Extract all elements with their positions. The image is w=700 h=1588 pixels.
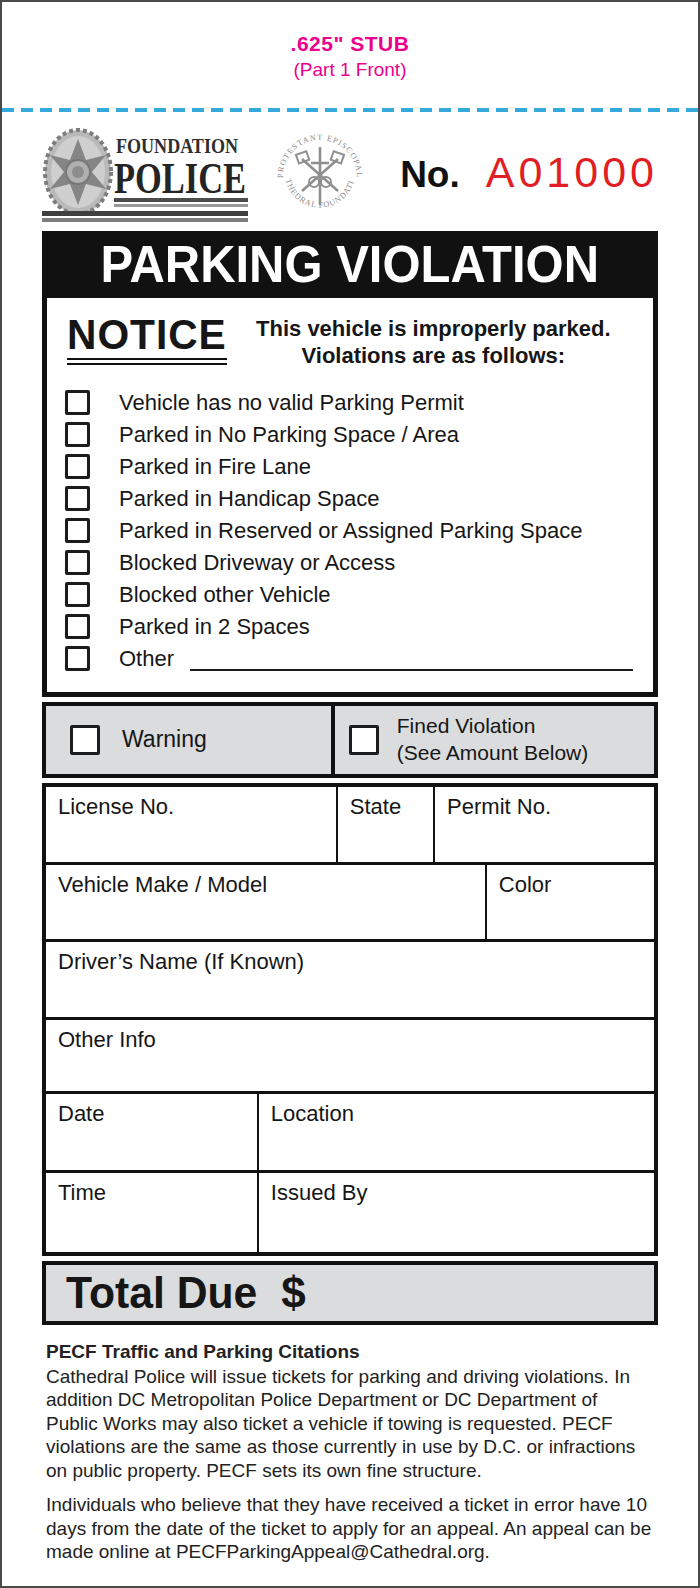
disposition-row: Warning Fined Violation (See Amount Belo… [42,702,658,778]
violation-label: Vehicle has no valid Parking Permit [119,390,464,416]
banner-title: PARKING VIOLATION [101,235,600,294]
perforation-dashed-line [2,108,698,112]
violation-label: Parked in Fire Lane [119,454,311,480]
violation-option-row: Parked in Fire Lane [65,454,633,480]
violation-notice-box: PARKING VIOLATION NOTICE This vehicle is… [42,231,658,697]
violation-label: Parked in 2 Spaces [119,614,310,640]
violation-checklist: Vehicle has no valid Parking Permit Park… [47,374,653,692]
notice-title: NOTICE [67,314,227,365]
fined-violation-label: Fined Violation (See Amount Below) [397,713,588,766]
violation-label: Blocked Driveway or Access [119,550,395,576]
footer-paragraph-2: Individuals who believe that they have r… [46,1493,654,1564]
other-write-in-line[interactable] [190,647,633,671]
total-due-bar: Total Due $ [42,1261,658,1325]
time-field[interactable]: Time [46,1173,259,1252]
violation-label: Other [119,646,174,672]
violation-checkbox[interactable] [65,390,90,415]
permit-no-field[interactable]: Permit No. [435,787,654,862]
violation-option-row: Vehicle has no valid Parking Permit [65,390,633,416]
violation-checkbox[interactable] [65,518,90,543]
notice-intro: This vehicle is improperly parked. Viola… [232,314,635,370]
police-badge-icon [45,130,111,214]
violation-option-row: Parked in Reserved or Assigned Parking S… [65,518,633,544]
violation-checkbox[interactable] [65,454,90,479]
violation-checkbox[interactable] [65,486,90,511]
notice-intro-line2: Violations are as follows: [232,343,635,370]
total-due-label: Total Due [66,1268,257,1318]
warning-cell: Warning [46,706,335,774]
date-field[interactable]: Date [46,1094,259,1170]
fined-violation-cell: Fined Violation (See Amount Below) [335,706,654,774]
parking-ticket-page: .625" STUB (Part 1 Front) FOUNDATION POL… [0,0,700,1588]
parking-violation-banner: PARKING VIOLATION [47,236,653,298]
violation-label: Parked in Handicap Space [119,486,380,512]
violation-option-row: Blocked other Vehicle [65,582,633,608]
notice-heading-row: NOTICE This vehicle is improperly parked… [47,298,653,374]
issued-by-field[interactable]: Issued By [259,1173,654,1252]
foundation-police-logo-icon: FOUNDATION POLICE [42,127,248,223]
stub-size-label: .625" STUB [2,32,698,56]
warning-checkbox[interactable] [70,725,100,755]
table-row: Other Info [46,1020,654,1094]
cathedral-foundation-seal-icon: PROTESTANT EPISCOPAL CATHEDRAL FOUNDATIO… [270,125,370,225]
violation-checkbox[interactable] [65,550,90,575]
ticket-number: No. A01000 [400,148,658,203]
violation-option-row: Parked in No Parking Space / Area [65,422,633,448]
license-no-field[interactable]: License No. [46,787,338,862]
footer-paragraph-1: Cathedral Police will issue tickets for … [46,1365,654,1483]
violation-label: Parked in No Parking Space / Area [119,422,459,448]
violation-checkbox[interactable] [65,582,90,607]
footer-heading: PECF Traffic and Parking Citations [46,1341,654,1363]
violation-checkbox[interactable] [65,422,90,447]
table-row: License No. State Permit No. [46,787,654,865]
fined-violation-checkbox[interactable] [349,725,379,755]
ticket-header: FOUNDATION POLICE PROTESTANT EPISCOPAL C… [42,127,658,223]
warning-label: Warning [122,726,207,753]
legal-footer: PECF Traffic and Parking Citations Cathe… [46,1341,654,1564]
location-field[interactable]: Location [259,1094,654,1170]
violation-checkbox[interactable] [65,646,90,671]
violation-option-row-other: Other [65,646,633,672]
table-row: Driver’s Name (If Known) [46,942,654,1020]
other-info-field[interactable]: Other Info [46,1020,654,1091]
violation-label: Blocked other Vehicle [119,582,331,608]
citation-fields-table: License No. State Permit No. Vehicle Mak… [42,783,658,1256]
stub-part-label: (Part 1 Front) [2,59,698,81]
ticket-number-value: A01000 [486,148,658,197]
stub-header: .625" STUB (Part 1 Front) [2,2,698,81]
drivers-name-field[interactable]: Driver’s Name (If Known) [46,942,654,1017]
violation-option-row: Parked in Handicap Space [65,486,633,512]
table-row: Date Location [46,1094,654,1173]
color-field[interactable]: Color [487,865,654,939]
vehicle-make-model-field[interactable]: Vehicle Make / Model [46,865,487,939]
state-field[interactable]: State [338,787,435,862]
violation-option-row: Parked in 2 Spaces [65,614,633,640]
svg-text:POLICE: POLICE [114,154,246,203]
violation-checkbox[interactable] [65,614,90,639]
ticket-number-label: No. [400,154,460,196]
table-row: Time Issued By [46,1173,654,1252]
violation-label: Parked in Reserved or Assigned Parking S… [119,518,582,544]
violation-option-row: Blocked Driveway or Access [65,550,633,576]
notice-intro-line1: This vehicle is improperly parked. [232,316,635,343]
dollar-sign: $ [281,1268,305,1318]
table-row: Vehicle Make / Model Color [46,865,654,942]
